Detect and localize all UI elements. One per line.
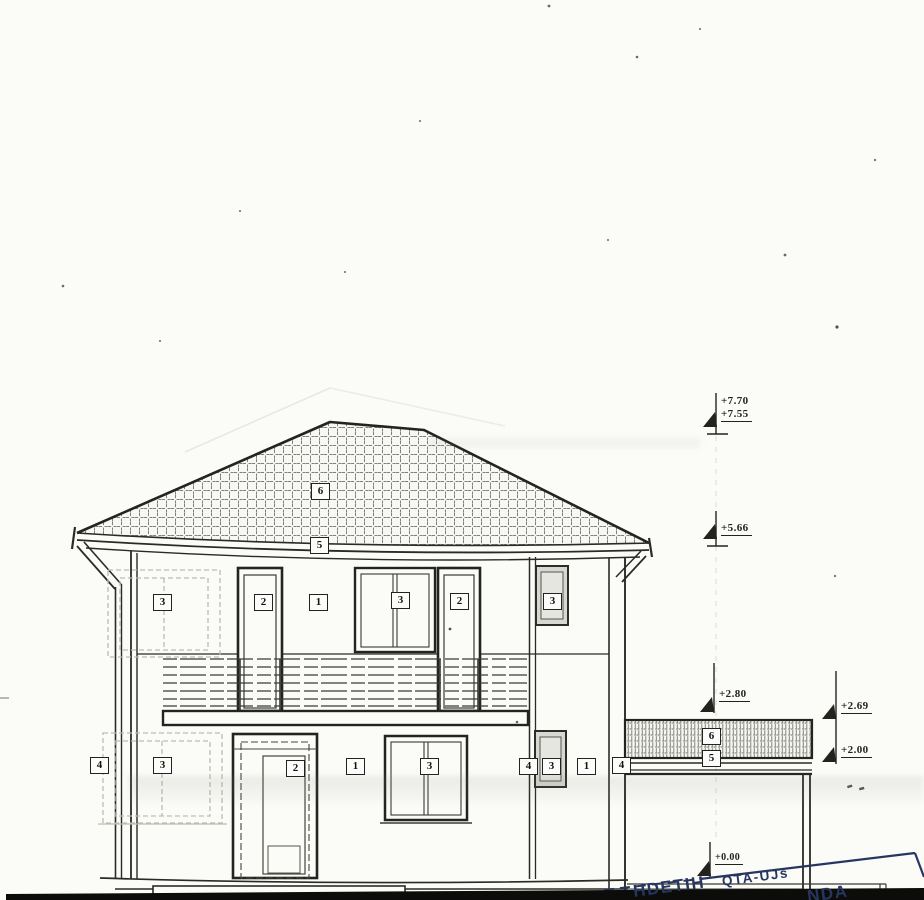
upper-door-left (238, 568, 282, 711)
tag-upper-window-mid: 3 (391, 592, 410, 609)
elevation-drawing (0, 0, 924, 900)
tag-ground-window-right: 3 (542, 758, 561, 775)
elevation-canopy-soffit: +2.00 (841, 744, 872, 758)
tag-upper-wall: 1 (309, 594, 328, 611)
tag-ground-wall-right: 1 (577, 758, 596, 775)
tag-roof: 6 (311, 483, 330, 500)
tag-ground-window-left: 3 (153, 757, 172, 774)
upper-window-mid (355, 568, 435, 652)
elevation-markers (697, 393, 836, 878)
upper-door-right (438, 568, 480, 711)
ground-entrance-door (233, 734, 317, 878)
balcony-slab (163, 711, 528, 725)
scan-smudge-band (128, 776, 924, 802)
tag-ground-door: 2 (286, 760, 305, 777)
scan-smudge-small (430, 438, 700, 448)
tag-upper-window-left: 3 (153, 594, 172, 611)
elevation-canopy-slab: +2.69 (841, 700, 872, 714)
tag-canopy-eave: 5 (702, 750, 721, 767)
tag-canopy-roof: 6 (702, 728, 721, 745)
downpipe-left (77, 542, 122, 879)
upper-window-left (108, 570, 220, 657)
tag-ground-window-mid: 3 (420, 758, 439, 775)
tag-ground-downpipe-right: 4 (612, 757, 631, 774)
marker-canopy-soffit (822, 720, 836, 764)
elevation-ridge-top: +7.70 (721, 395, 749, 407)
tag-upper-door-right: 2 (450, 593, 469, 610)
downpipe-right (616, 551, 646, 582)
ground-line (6, 888, 924, 900)
marker-canopy-top (700, 663, 714, 713)
downpipe-mid (530, 557, 536, 879)
tag-upper-window-right: 3 (543, 593, 562, 610)
tag-ground-downpipe-mid: 4 (519, 758, 538, 775)
tag-eave: 5 (310, 537, 329, 554)
tag-ground-downpipe-left: 4 (90, 757, 109, 774)
drawing-sheet: 6 5 3 2 1 3 2 3 4 3 2 1 3 4 3 1 4 6 5 +7… (0, 0, 924, 900)
tag-ground-wall: 1 (346, 758, 365, 775)
tag-upper-door-left: 2 (254, 594, 273, 611)
elevation-ridge: +7.55 (721, 408, 752, 422)
elevation-eave: +5.66 (721, 522, 752, 536)
marker-canopy-slab (822, 671, 836, 720)
elevation-ground: +0.00 (715, 852, 743, 865)
elevation-canopy-top: +2.80 (719, 688, 750, 702)
